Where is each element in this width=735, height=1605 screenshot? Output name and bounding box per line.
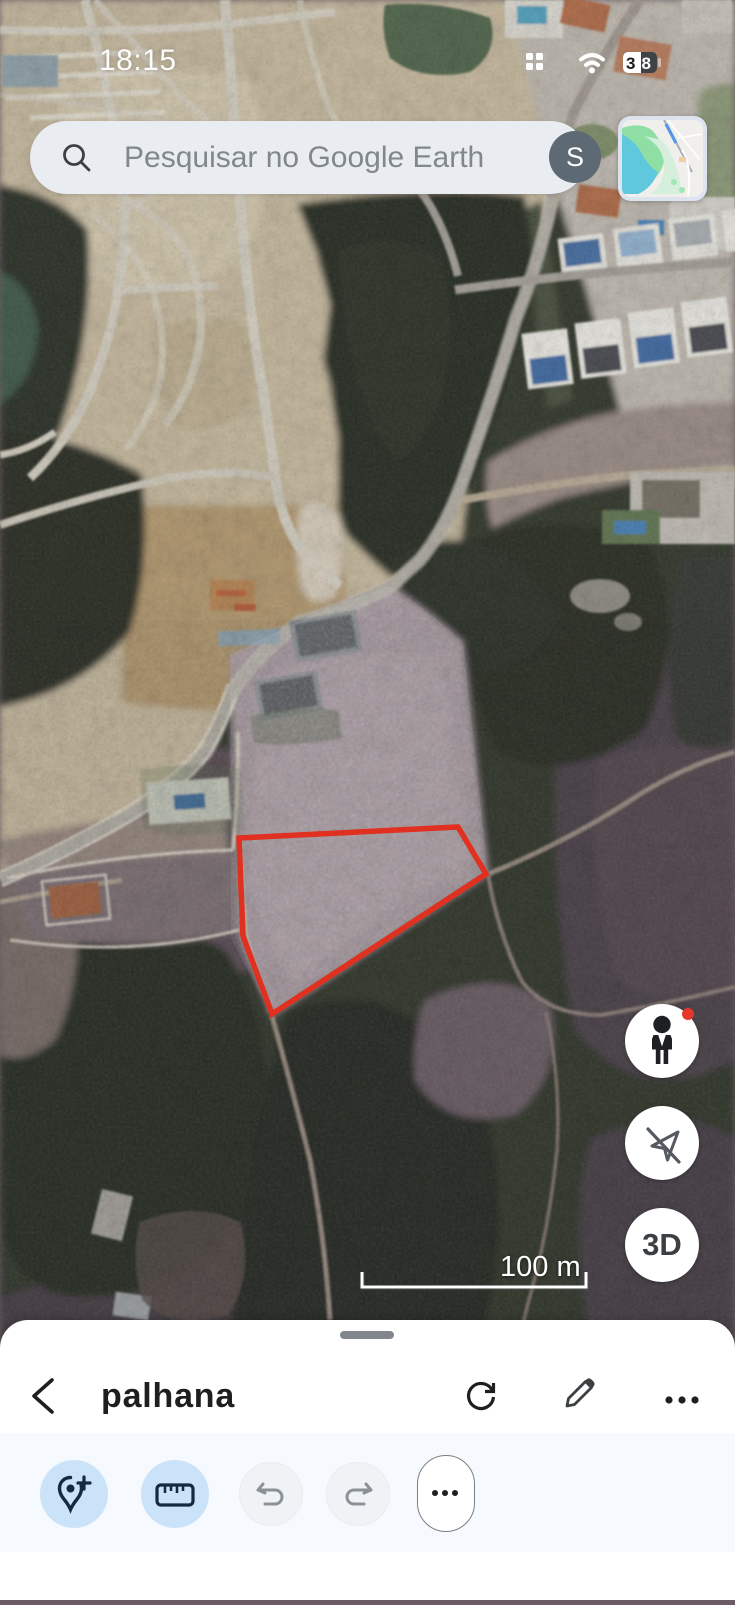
svg-text:8: 8 (642, 54, 651, 73)
svg-text:3: 3 (626, 54, 635, 73)
svg-text:100 m: 100 m (500, 1251, 581, 1283)
